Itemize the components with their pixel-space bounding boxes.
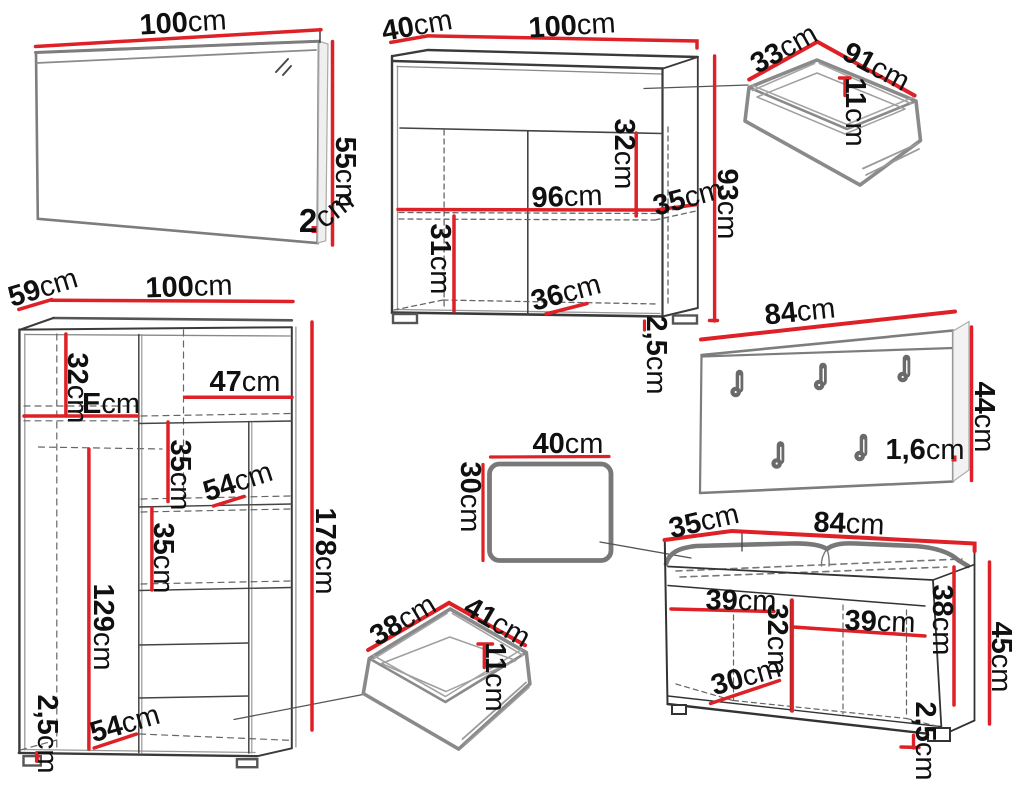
svg-text:11cm: 11cm bbox=[479, 642, 511, 711]
svg-text:35cm: 35cm bbox=[164, 440, 196, 511]
svg-text:96cm: 96cm bbox=[531, 180, 603, 214]
svg-text:40cm: 40cm bbox=[533, 428, 604, 460]
svg-text:100cm: 100cm bbox=[139, 4, 228, 41]
svg-text:31cm: 31cm bbox=[424, 224, 456, 295]
svg-text:1,6cm: 1,6cm bbox=[886, 434, 965, 466]
svg-text:2,5cm: 2,5cm bbox=[909, 702, 941, 781]
svg-text:Ecm: Ecm bbox=[82, 388, 140, 420]
svg-text:100cm: 100cm bbox=[145, 269, 233, 304]
svg-text:178cm: 178cm bbox=[309, 507, 341, 594]
svg-text:84cm: 84cm bbox=[813, 506, 885, 541]
svg-text:30cm: 30cm bbox=[454, 462, 486, 533]
svg-text:45cm: 45cm bbox=[985, 622, 1017, 693]
svg-text:2,5cm: 2,5cm bbox=[640, 316, 672, 395]
svg-text:38cm: 38cm bbox=[926, 585, 958, 656]
svg-text:47cm: 47cm bbox=[210, 366, 281, 398]
svg-text:129cm: 129cm bbox=[87, 583, 119, 670]
svg-text:32cm: 32cm bbox=[608, 119, 640, 190]
svg-text:2,5cm: 2,5cm bbox=[31, 695, 63, 774]
svg-text:100cm: 100cm bbox=[528, 7, 617, 44]
svg-text:35cm: 35cm bbox=[147, 523, 179, 594]
svg-text:11cm: 11cm bbox=[839, 77, 871, 146]
svg-text:44cm: 44cm bbox=[968, 382, 1000, 453]
svg-text:39cm: 39cm bbox=[844, 605, 916, 639]
